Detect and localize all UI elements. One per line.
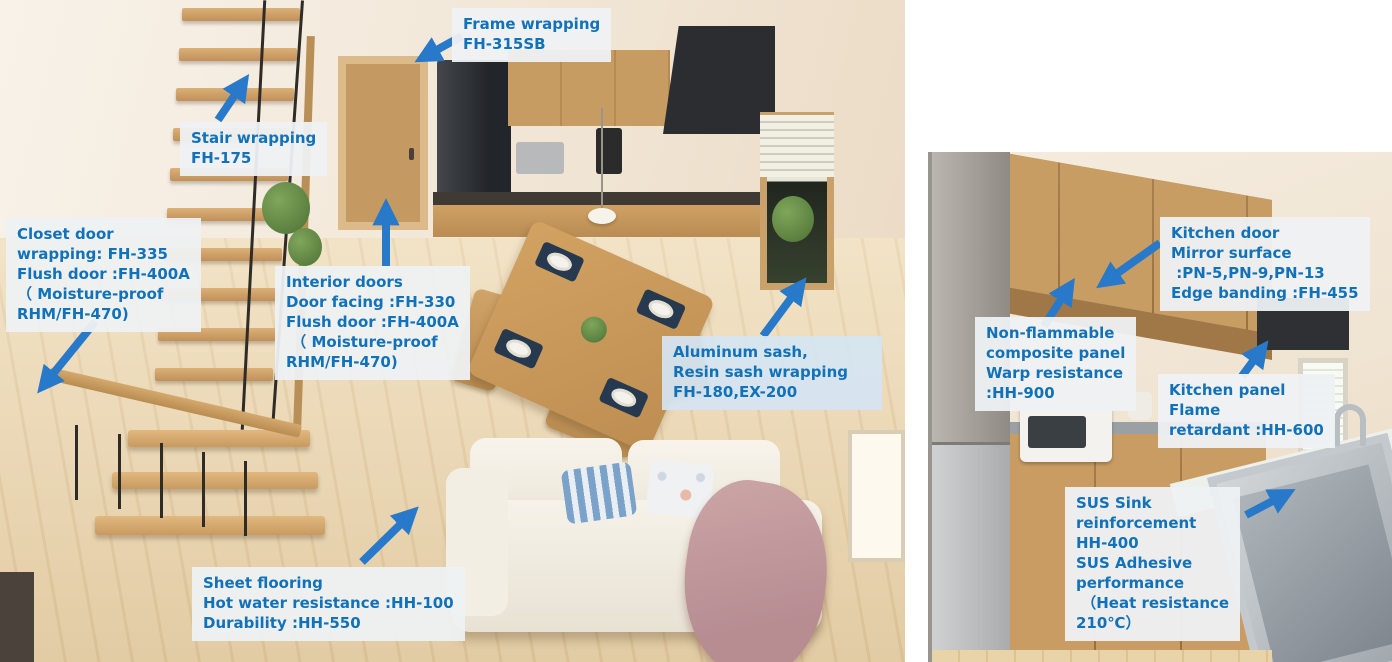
coffee-maker bbox=[596, 128, 622, 174]
stair-landing-step bbox=[112, 472, 318, 489]
annotation-kitchen-door: Kitchen door Mirror surface :PN-5,PN-9,P… bbox=[1160, 217, 1370, 311]
pendant-light-shade bbox=[588, 208, 616, 224]
annotated-interior-diagram: Frame wrapping FH-315SB Stair wrapping F… bbox=[0, 0, 1392, 662]
annotation-sheet-flooring: Sheet flooring Hot water resistance :HH-… bbox=[192, 567, 465, 641]
annotation-kitchen-panel: Kitchen panel Flame retardant :HH-600 bbox=[1158, 374, 1335, 448]
microwave-window bbox=[1028, 416, 1086, 448]
pendant-light-cord bbox=[601, 108, 603, 212]
plant-in-window bbox=[772, 196, 814, 242]
microwave-oven bbox=[1020, 404, 1112, 462]
side-window bbox=[848, 430, 905, 562]
annotation-frame-wrapping: Frame wrapping FH-315SB bbox=[452, 8, 611, 62]
sofa bbox=[452, 438, 824, 658]
railing-rod bbox=[160, 443, 163, 518]
striped-pillow bbox=[561, 461, 638, 524]
door-handle bbox=[409, 148, 414, 160]
toaster-oven bbox=[516, 142, 564, 174]
railing-rod bbox=[75, 425, 78, 500]
annotation-sus-sink: SUS Sink reinforcement HH-400 SUS Adhesi… bbox=[1065, 487, 1240, 641]
interior-door bbox=[338, 56, 428, 230]
faucet bbox=[1334, 404, 1366, 446]
kitchen-floor bbox=[932, 650, 1272, 662]
annotation-aluminum-sash: Aluminum sash, Resin sash wrapping FH-18… bbox=[662, 336, 882, 410]
refrigerator bbox=[932, 442, 1010, 662]
stair-landing-step bbox=[95, 516, 325, 535]
annotation-non-flammable-panel: Non-flammable composite panel Warp resis… bbox=[975, 317, 1136, 411]
railing-rod bbox=[118, 434, 121, 509]
stair-step bbox=[176, 88, 294, 101]
range-hood bbox=[663, 26, 775, 134]
stair-step bbox=[179, 48, 297, 61]
railing-rod bbox=[244, 461, 247, 536]
stair-step bbox=[155, 368, 273, 381]
annotation-closet-door: Closet door wrapping: FH-335 Flush door … bbox=[6, 218, 201, 332]
annotation-stair-wrapping: Stair wrapping FH-175 bbox=[180, 122, 327, 176]
window-blind bbox=[760, 115, 834, 177]
stair-step bbox=[182, 8, 300, 21]
annotation-interior-doors: Interior doors Door facing :FH-330 Flush… bbox=[275, 266, 470, 380]
hanging-plant bbox=[262, 182, 310, 234]
table-centerpiece-plant bbox=[577, 312, 611, 346]
sink-basin bbox=[1233, 464, 1392, 662]
hanging-plant-leaf bbox=[288, 228, 322, 266]
dark-wall-corner bbox=[0, 572, 34, 662]
railing-rod bbox=[202, 452, 205, 527]
